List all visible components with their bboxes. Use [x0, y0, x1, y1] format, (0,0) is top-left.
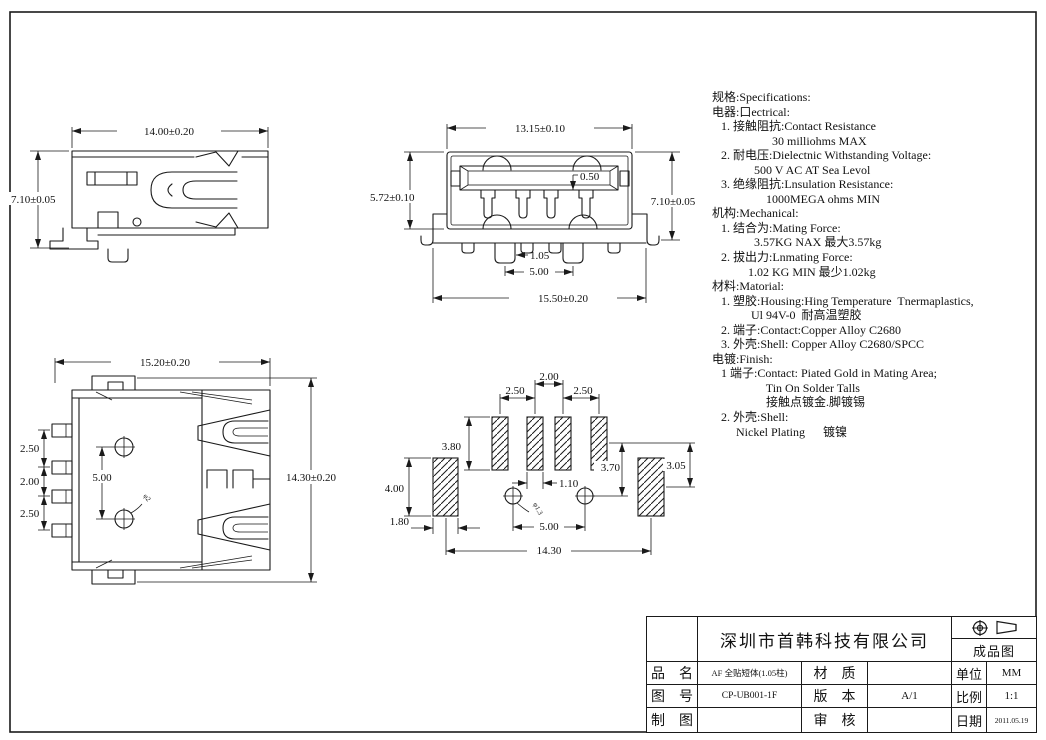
- dimension-label: φ2: [141, 492, 152, 503]
- spec-line: 500 V AC AT Sea Levol: [712, 163, 1042, 178]
- dimension-label: 2.00: [539, 371, 559, 383]
- solder-pin-4: [52, 524, 72, 537]
- footprint-pitch-dimensions: 2.00 2.50 2.50: [500, 371, 599, 414]
- spec-line: 2. 拔出力:Lnmating Force:: [712, 250, 1042, 265]
- footprint-shell-pad-width-dimension: 1.80: [390, 516, 480, 534]
- footprint-hole-pitch-dimension: 5.00: [513, 506, 585, 533]
- solder-pin-2: [52, 461, 72, 474]
- spec-line: 3.57KG NAX 最大3.57kg: [712, 235, 1042, 250]
- projection-symbols-cell: [952, 617, 1037, 639]
- front-right-height-dimension: 7.10±0.05: [635, 152, 703, 240]
- contact-pad-3: [555, 417, 571, 470]
- scale-value: 1:1: [987, 685, 1037, 708]
- top-peg-pitch-dimension: 5.00: [85, 447, 119, 519]
- board-lock-tab-bottom: [92, 570, 135, 584]
- top-view-outline: [52, 376, 270, 584]
- checked-label: 审 核: [802, 708, 868, 733]
- part-name-value: AF 全贴短体(1.05柱): [698, 662, 802, 685]
- spec-line: 1.02 KG MIN 最少1.02kg: [712, 265, 1042, 280]
- version-label: 版 本: [802, 685, 868, 708]
- shell-dimples: [483, 156, 601, 170]
- date-value: 2011.05.19: [987, 708, 1037, 733]
- title-block-empty-cell: [647, 617, 698, 662]
- scale-label: 比例: [952, 685, 987, 708]
- contact-1: [481, 190, 495, 218]
- dimension-label: 1.05: [530, 250, 550, 262]
- contact-pad-2: [527, 417, 543, 470]
- datum-target-icon: [971, 620, 989, 636]
- dimension-label: 5.00: [539, 521, 559, 533]
- spec-line: 2. 耐电压:Dielectnic Withstanding Voltage:: [712, 148, 1042, 163]
- pcb-footprint-drawing: 2.00 2.50 2.50 3.80 4.00 1.80 1.10: [385, 371, 695, 557]
- dimension-label: 1.10: [559, 478, 579, 490]
- locating-peg-upper: [113, 436, 135, 458]
- top-view-drawing: 15.20±0.20 14.30±0.20 2.50 2.00 2.50 5.0…: [20, 355, 342, 584]
- company-name: 深圳市首韩科技有限公司: [698, 617, 952, 662]
- dimension-label: 2.50: [20, 508, 40, 520]
- peg-hole-left: [503, 486, 523, 506]
- flange-right: [632, 214, 659, 245]
- footprint-shell-pad-length-dimension: 4.00: [385, 458, 431, 516]
- dimension-label: 0.50: [580, 171, 600, 183]
- material-label: 材 质: [802, 662, 868, 685]
- spec-line: Nickel Plating 镀镍: [712, 425, 1042, 440]
- spec-line: 电镀:Finish:: [712, 352, 1042, 367]
- dimension-label: 7.10±0.05: [11, 194, 56, 206]
- drawing-no-label: 图 号: [647, 685, 698, 708]
- locating-peg: [108, 249, 128, 262]
- locating-peg-lower: [113, 508, 135, 530]
- spec-line: 接触点镀金.脚镀锡: [712, 395, 1042, 410]
- top-peg-diameter-label: φ2: [131, 492, 153, 513]
- flange-left: [421, 214, 447, 245]
- dimension-label: φ1.3: [531, 501, 544, 516]
- dimension-label: 1.80: [390, 516, 410, 528]
- contact-pad-1: [492, 417, 508, 470]
- contact-2: [516, 190, 530, 218]
- shell-latch-bottom: [196, 213, 238, 228]
- drawing-sheet: 14.00±0.20 7.10±0.05: [0, 0, 1046, 740]
- contact-4: [579, 190, 593, 218]
- spec-line: 机构:Mechanical:: [712, 206, 1042, 221]
- dimension-label: 3.70: [601, 462, 621, 474]
- footprint-hole-diameter-label: φ1.3: [517, 501, 545, 516]
- front-top-width-dimension: 13.15±0.10: [447, 121, 632, 149]
- spec-line: 2. 端子:Contact:Copper Alloy C2680: [712, 323, 1042, 338]
- material-value: [868, 662, 952, 685]
- front-contact-width-dimension: 0.50: [573, 171, 600, 190]
- rivet-dimple: [133, 218, 141, 226]
- dimension-label: 5.00: [529, 266, 549, 278]
- board-peg-right: [563, 243, 583, 263]
- board-peg-left: [495, 243, 515, 263]
- spec-line: 2. 外壳:Shell:: [712, 410, 1042, 425]
- side-view-drawing: 14.00±0.20 7.10±0.05: [9, 124, 268, 262]
- mount-foot: [50, 228, 98, 249]
- dimension-label: 2.00: [20, 476, 40, 488]
- spec-line: 3. 绝缘阻抗:Lnsulation Resistance:: [712, 177, 1042, 192]
- top-height-dimension: 14.30±0.20: [137, 378, 342, 582]
- dimension-label: 15.20±0.20: [140, 357, 191, 369]
- cone-projection-icon: [996, 620, 1018, 635]
- board-lock-tab-top: [92, 376, 135, 390]
- spec-line: 1 端子:Contact: Piated Gold in Mating Area…: [712, 366, 1042, 381]
- footprint-pads: [433, 417, 664, 516]
- top-width-dimension: 15.20±0.20: [55, 355, 270, 386]
- spec-line: 1. 接触阻抗:Contact Resistance: [712, 119, 1042, 134]
- spec-line: 电器:口ectrical:: [712, 105, 1042, 120]
- shell-pad-right: [638, 458, 664, 516]
- title-block-table: 深圳市首韩科技有限公司 成品图 品 名 A: [646, 616, 1037, 733]
- specifications-text: 规格:Specifications:电器:口ectrical: 1. 接触阻抗:…: [712, 90, 1042, 439]
- spring-arm-upper: [198, 410, 270, 456]
- dimension-label: 5.72±0.10: [370, 192, 415, 204]
- drawing-type-stamp: 成品图: [952, 639, 1037, 662]
- dimension-label: 14.30±0.20: [286, 472, 337, 484]
- version-value: A/1: [868, 685, 952, 708]
- front-peg-pitch-dimension: 5.00: [505, 265, 573, 278]
- contact-spring: [151, 172, 237, 208]
- part-name-label: 品 名: [647, 662, 698, 685]
- spec-line: Tin On Solder Talls: [712, 381, 1042, 396]
- solder-pin-1: [52, 424, 72, 437]
- spec-line: 1. 塑胶:Housing:Hing Temperature Tnermapla…: [712, 294, 1042, 309]
- spring-arm-lower: [198, 504, 270, 550]
- dimension-label: 3.80: [442, 441, 462, 453]
- dimension-label: 7.10±0.05: [651, 196, 696, 208]
- dimension-label: 3.05: [666, 460, 686, 472]
- dimension-label: 4.00: [385, 483, 405, 495]
- spec-line: Ul 94V-0 耐高温塑胶: [712, 308, 1042, 323]
- side-height-dimension: 7.10±0.05: [9, 151, 69, 248]
- dimension-label: 14.00±0.20: [144, 126, 195, 138]
- contact-3: [544, 190, 558, 218]
- spec-line: 30 milliohms MAX: [712, 134, 1042, 149]
- front-view-outline: [421, 152, 659, 263]
- dimension-label: 2.50: [505, 385, 525, 397]
- spec-line: 1000MEGA ohms MIN: [712, 192, 1042, 207]
- solder-pin-3: [52, 490, 72, 503]
- spec-line: 3. 外壳:Shell: Copper Alloy C2680/SPCC: [712, 337, 1042, 352]
- unit-value: MM: [987, 662, 1037, 685]
- spec-line: 规格:Specifications:: [712, 90, 1042, 105]
- side-view-outline: [50, 151, 268, 262]
- spec-line: 材料:Matorial:: [712, 279, 1042, 294]
- top-pin-pitch-dimensions: 2.50 2.00 2.50: [20, 430, 50, 530]
- shell-pad-left: [433, 458, 458, 516]
- dimension-label: 2.50: [20, 443, 40, 455]
- dimension-label: 5.00: [92, 472, 112, 484]
- title-block: 深圳市首韩科技有限公司 成品图 品 名 A: [646, 616, 1037, 733]
- front-view-drawing: 13.15±0.10 5.72±0.10 7.10±0.05 0.50 1.05: [368, 121, 703, 305]
- date-label: 日期: [952, 708, 987, 733]
- drawing-no-value: CP-UB001-1F: [698, 685, 802, 708]
- checked-value: [868, 708, 952, 733]
- footprint-pad-width-dimension: 1.10: [512, 472, 579, 490]
- dimension-label: 15.50±0.20: [538, 293, 589, 305]
- drawn-by-label: 制 图: [647, 708, 698, 733]
- center-contacts: [207, 470, 270, 488]
- spec-line: 1. 结合为:Mating Force:: [712, 221, 1042, 236]
- side-width-dimension: 14.00±0.20: [72, 124, 268, 148]
- unit-label: 单位: [952, 662, 987, 685]
- dimension-label: 14.30: [537, 545, 562, 557]
- dimension-label: 2.50: [573, 385, 593, 397]
- drawn-by-value: [698, 708, 802, 733]
- dimension-label: 13.15±0.10: [515, 123, 566, 135]
- shell-latch-top: [196, 151, 238, 166]
